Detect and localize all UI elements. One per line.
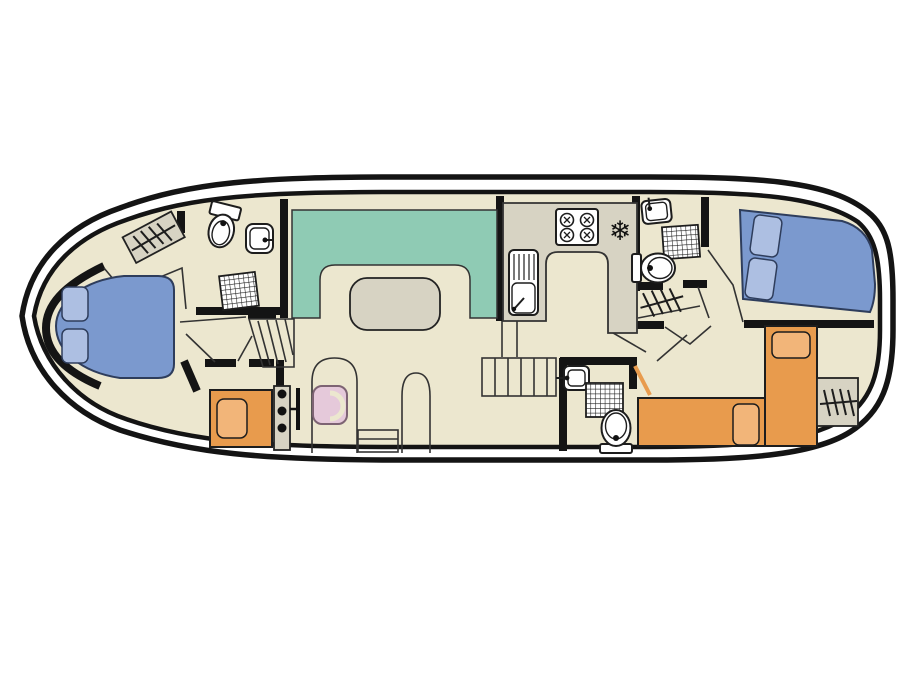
fwd-shower [219,272,259,310]
aft-pillow-2 [744,257,777,301]
forward-single-cabin [210,390,272,447]
galley-hob [556,209,598,245]
toilet-flush-icon [613,435,619,441]
fwd-single-pillow [217,399,247,438]
basin-tap-dot [263,238,268,243]
helm-console [274,386,290,450]
basin-tap-icon [649,198,650,207]
console-dial-2 [278,407,287,416]
toilet-cistern [632,254,641,282]
mid-shower [662,225,700,259]
fridge-snowflake-icon: ❄ [609,216,632,247]
deck-plan-page: ❄ [0,0,902,677]
mid-toilet [632,254,675,283]
bow-pillow-1 [62,287,88,321]
stern-wardrobe [817,378,858,426]
toilet-flush-icon [647,265,653,271]
boat-deck-plan: ❄ [0,0,902,677]
aft-toilet [600,410,632,453]
bow-double-cabin [56,276,174,378]
dinette-table [350,278,440,330]
aft-single-pillow-1 [772,332,810,358]
aft-single-pillow-2 [733,404,759,445]
fwd-washbasin [246,224,274,253]
console-dial-3 [278,424,287,433]
aft-pillow-1 [749,214,782,258]
basin-tap-dot [565,376,570,381]
basin-inner [568,370,585,386]
sink-tap-dot [512,307,516,311]
galley-sink [509,250,538,315]
console-dial-1 [278,390,287,399]
bow-pillow-2 [62,329,88,363]
throttle-lever [296,388,300,430]
helm-seat [313,386,347,424]
